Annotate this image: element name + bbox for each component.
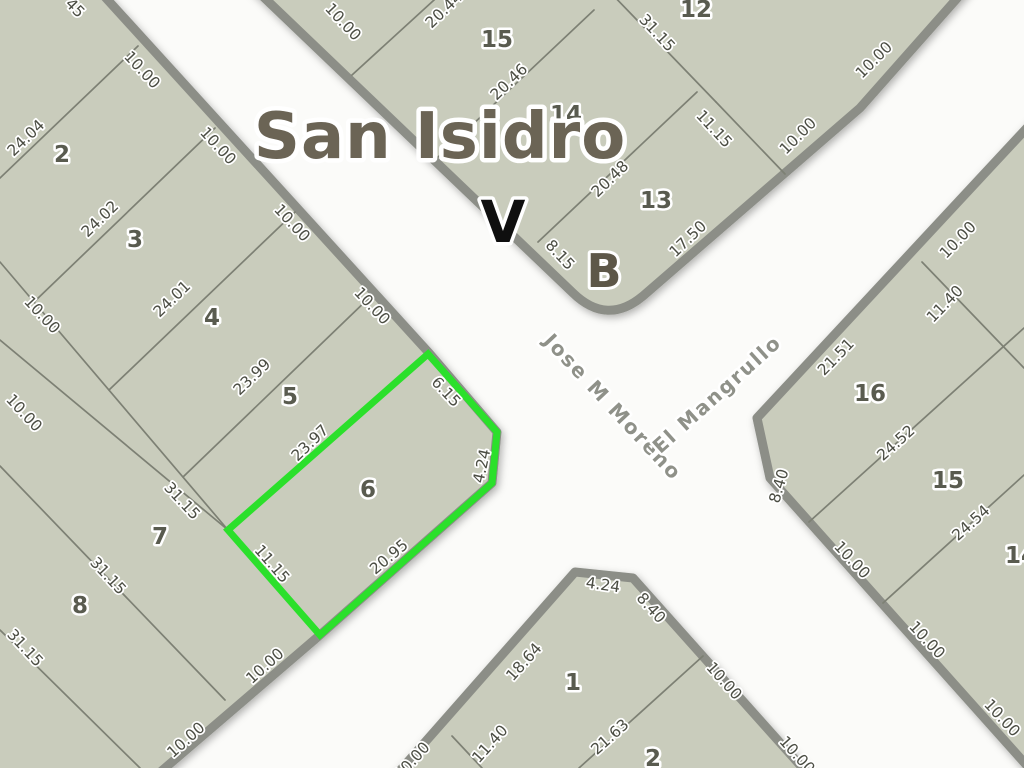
parcel-number: 6 (360, 477, 376, 503)
parcel-number: 12 (680, 0, 712, 23)
parcel-map: 4524.0424.0224.0123.9923.9710.0010.0010.… (0, 0, 1024, 768)
map-title: San Isidro (254, 100, 626, 174)
marker-v: V (481, 188, 526, 256)
parcel-number: 1 (565, 670, 581, 696)
parcel-number: 15 (932, 468, 964, 494)
parcel-number: 2 (54, 142, 70, 168)
parcel-number: 3 (127, 227, 143, 253)
parcel-number: 15 (481, 27, 513, 53)
parcel-number: 14 (1005, 543, 1024, 569)
block-letter-b: B (586, 244, 621, 298)
parcel-number: 5 (282, 384, 298, 410)
parcel-number: 13 (640, 188, 672, 214)
cadastral-map-screenshot: 4524.0424.0224.0123.9923.9710.0010.0010.… (0, 0, 1024, 768)
parcel-number: 16 (854, 381, 886, 407)
parcel-number: 8 (72, 593, 88, 619)
parcel-number: 4 (204, 305, 220, 331)
parcel-number: 7 (152, 524, 168, 550)
parcel-number: 2 (645, 746, 661, 768)
